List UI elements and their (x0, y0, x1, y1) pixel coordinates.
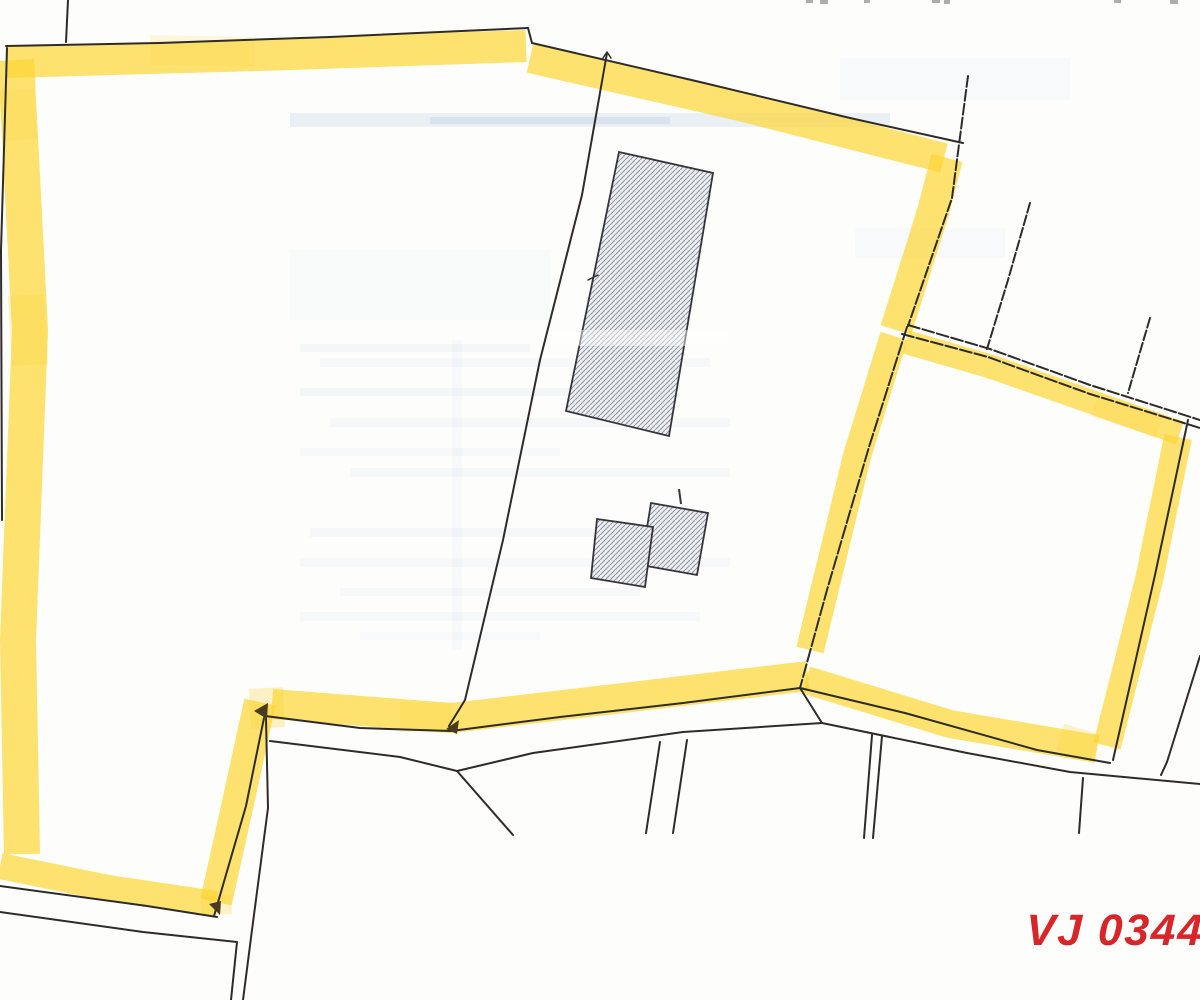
road-branch-line (457, 771, 513, 835)
division-line-b (1128, 318, 1150, 393)
rparcel-top-line-outer (908, 325, 1200, 420)
buildings-layer (566, 152, 713, 587)
highlight-southwest-steep (216, 702, 260, 902)
boundary-lines-layer (0, 0, 1200, 1000)
building-antenna-tick (679, 489, 681, 504)
highlight-rparcel-east (1107, 437, 1178, 746)
scan-streak (290, 250, 550, 320)
highlight-overlap (1095, 405, 1160, 426)
highlight-southwest (0, 866, 216, 904)
highlight-overlap (150, 50, 255, 52)
building-large-hatched (566, 152, 713, 436)
highlight-west (16, 60, 30, 854)
scan-streak (300, 612, 700, 621)
cutoff-text-mark (806, 0, 813, 3)
cutoff-text-mark (944, 0, 950, 4)
scan-streak (300, 344, 530, 352)
lane-line-b (673, 740, 687, 833)
cadastral-plan-scan: VJ 0344 (0, 0, 1200, 1000)
division-line-a (987, 203, 1030, 349)
scan-streak (360, 632, 540, 640)
highlight-overlap (400, 717, 452, 718)
cadastral-map (0, 0, 1200, 1000)
cutoff-text-mark (864, 0, 870, 3)
cutoff-text-mark (1170, 0, 1178, 4)
building-small-hatched-west (591, 519, 653, 587)
road-line-southwest-lower (0, 912, 237, 1000)
highlight-overlap (1060, 737, 1096, 748)
highlight-overlap (26, 295, 30, 365)
scan-streak (840, 58, 1070, 100)
scan-streak (452, 340, 462, 650)
cutoff-text-mark (820, 0, 828, 4)
cutoff-text-mark (1114, 0, 1121, 3)
lane-line-c (864, 735, 872, 838)
road-line-east-diagonal (1161, 656, 1200, 775)
highlight-overlap (16, 90, 20, 140)
parcel-boundary-north-notch (528, 28, 532, 43)
highlight-rparcel-south (806, 680, 1097, 749)
scan-fade (552, 330, 727, 346)
highlight-top-west (6, 46, 526, 62)
cutoff-text-mark (932, 0, 940, 3)
lane-line-d (873, 736, 882, 838)
plan-reference-label: VJ 0344 (1025, 906, 1200, 956)
survey-line-top-stub (66, 0, 68, 42)
lane-line-a (646, 742, 660, 833)
scan-streak (430, 117, 670, 124)
scan-streak (350, 468, 730, 477)
lane-line-e (1079, 778, 1083, 833)
highlighter-layer (0, 46, 1180, 915)
road-line-south-parallel (270, 723, 822, 771)
